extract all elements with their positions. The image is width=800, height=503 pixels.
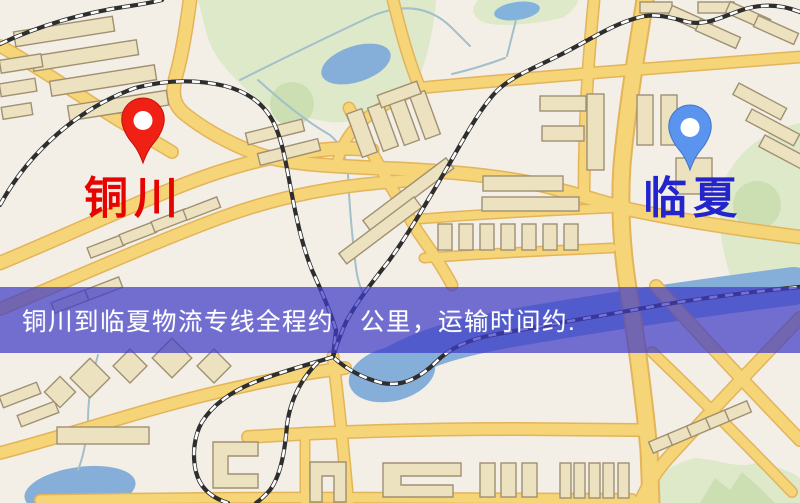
map-artwork	[0, 0, 800, 503]
origin-city-label: 铜川	[84, 177, 184, 221]
origin-pin-hole	[134, 111, 153, 130]
destination-pin-hole	[681, 118, 700, 137]
route-info-banner: 铜川到临夏物流专线全程约 公里，运输时间约.	[0, 287, 800, 353]
route-info-text: 铜川到临夏物流专线全程约 公里，运输时间约.	[22, 303, 576, 338]
destination-city-label: 临夏	[643, 177, 743, 221]
map-canvas: 铜川到临夏物流专线全程约 公里，运输时间约. 铜川 临夏	[0, 0, 800, 503]
